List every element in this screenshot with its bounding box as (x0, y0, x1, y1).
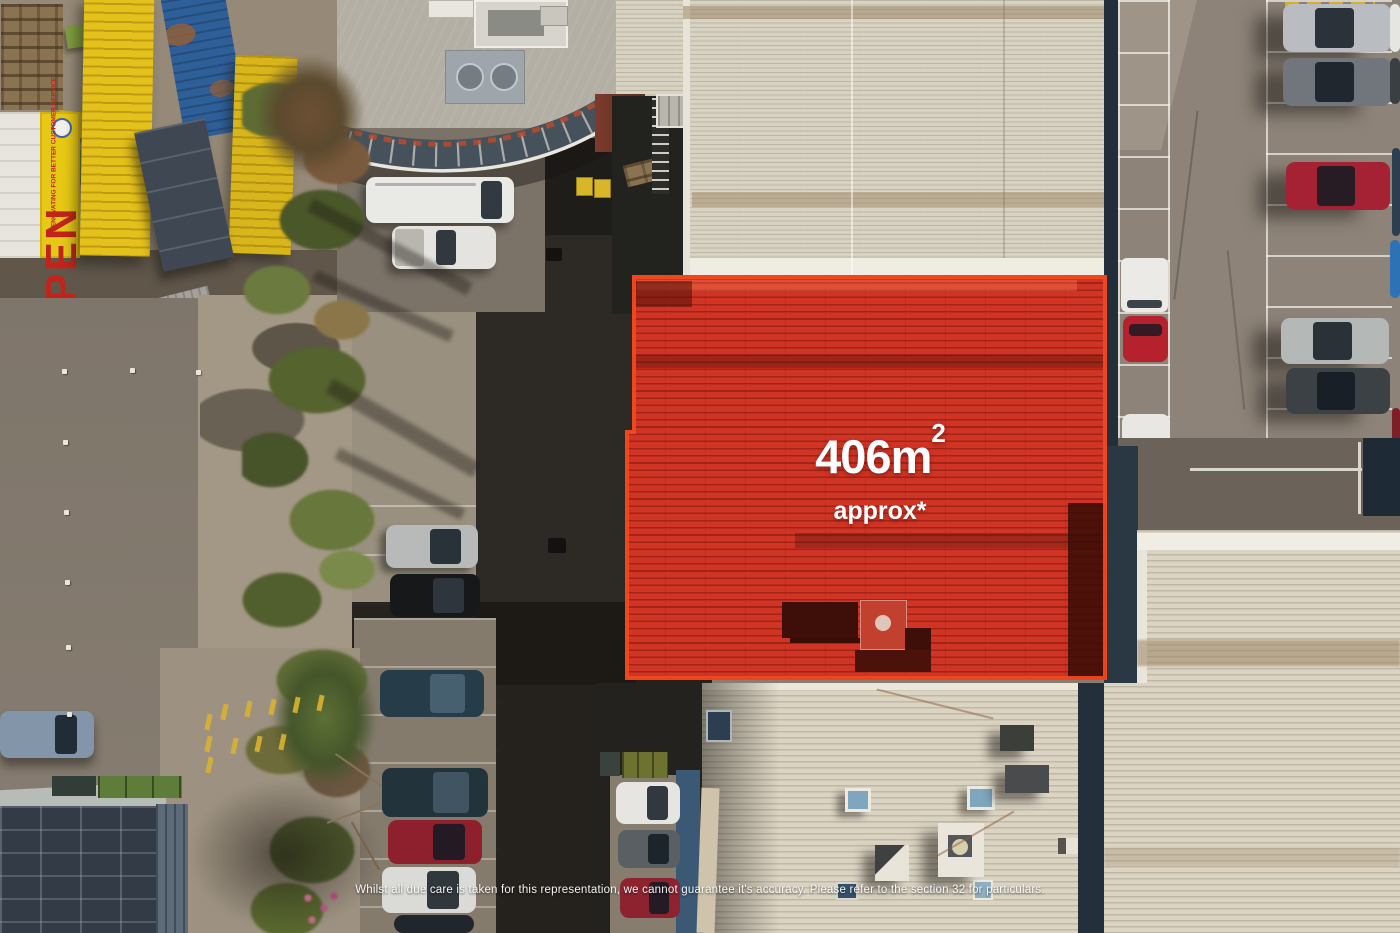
roof-tan-band (692, 192, 1108, 207)
rooftop-vent (540, 6, 568, 26)
cream-warehouse-roof-main (683, 0, 1108, 277)
road-marker (62, 369, 67, 374)
skylight (845, 788, 871, 812)
shipping-container-yellow-long (80, 0, 155, 257)
van-windshield (1127, 300, 1162, 308)
solar-panel-roof (0, 806, 158, 933)
tree-shadow-blob (190, 780, 380, 930)
highlight-overlay-406m2: 406m2 approx* (625, 275, 1107, 680)
roof-edge-white (683, 0, 690, 277)
green-bins (98, 776, 182, 798)
cream-roof-left-section (616, 0, 690, 102)
dark-bins (52, 776, 96, 796)
road-marker (67, 712, 72, 717)
roof-gutter-white (690, 258, 1108, 277)
car-windshield (1129, 324, 1162, 336)
car-silver (386, 525, 478, 568)
roof-weathered-band (1137, 640, 1400, 666)
skylight (706, 710, 732, 742)
car-white (616, 782, 680, 824)
car-partial-blue (1390, 240, 1400, 298)
olive-bins (622, 752, 668, 778)
building-gap-navy-mid (1104, 446, 1138, 686)
car-gray (618, 830, 680, 868)
rooftop-unit-white (875, 845, 909, 881)
warehouse-roof-bottom-right (1104, 530, 1400, 933)
disclaimer-text: Whilst all due care is taken for this re… (0, 884, 1400, 896)
car-red (388, 820, 482, 864)
plant-frame-inner (488, 10, 544, 36)
road-marker (196, 370, 201, 375)
lane-white-line (1190, 468, 1362, 471)
road-marker (64, 510, 69, 515)
car-red (1286, 162, 1390, 210)
roof-hatch (546, 248, 562, 261)
aerial-property-photo: RENOVATING FOR BETTER CUSTOMER SERVICE O… (0, 0, 1400, 933)
road-marker (65, 580, 70, 585)
car-dark-gray (1286, 368, 1390, 414)
navy-roof-wedge (1363, 438, 1400, 516)
car-gray (1283, 58, 1391, 106)
roof-tan-band (683, 6, 1108, 19)
rooftop-unit-dark (1000, 725, 1034, 751)
approx-label: approx* (625, 497, 1107, 526)
roof-gutter-white (1137, 533, 1400, 550)
tree-canopy (255, 55, 365, 175)
white-van-small (1121, 258, 1168, 312)
roof-rust-streak (877, 689, 994, 720)
car-silver (1281, 318, 1389, 364)
road-marker (63, 440, 68, 445)
roof-weathered-band (1104, 848, 1400, 866)
yellow-bin (594, 179, 611, 198)
car-dark-blue (380, 670, 484, 717)
lane-white-line-v (1358, 442, 1361, 514)
car-dark-partial (394, 915, 474, 933)
roof-seam (1003, 0, 1005, 258)
skylight (967, 786, 995, 810)
roof-seam (851, 0, 853, 277)
car-black-suv (390, 574, 480, 617)
rooftop-box (428, 0, 474, 18)
car-blue-gray (0, 711, 94, 758)
area-value: 406m (815, 430, 931, 483)
rooftop-unit-small (1058, 838, 1078, 854)
car-red-small (1123, 316, 1168, 362)
car-partial-white (1390, 4, 1400, 52)
car-partial-dark (1390, 58, 1400, 104)
road-marker (66, 645, 71, 650)
car-silver (1283, 4, 1391, 52)
yellow-bin (576, 177, 593, 196)
tree-canopy-green (272, 648, 377, 788)
dark-bin (600, 752, 620, 776)
rooftop-unit-dark (1005, 765, 1049, 793)
open-sign: RENOVATING FOR BETTER CUSTOMER SERVICE O… (40, 112, 80, 258)
solar-building-wall (156, 804, 188, 933)
car-teal-suv (382, 768, 488, 817)
car-partial-navy (1392, 148, 1400, 236)
road-marker (130, 368, 135, 373)
roof-hatch (548, 538, 566, 553)
area-superscript: 2 (931, 418, 944, 448)
area-label: 406m2 (625, 433, 1107, 480)
